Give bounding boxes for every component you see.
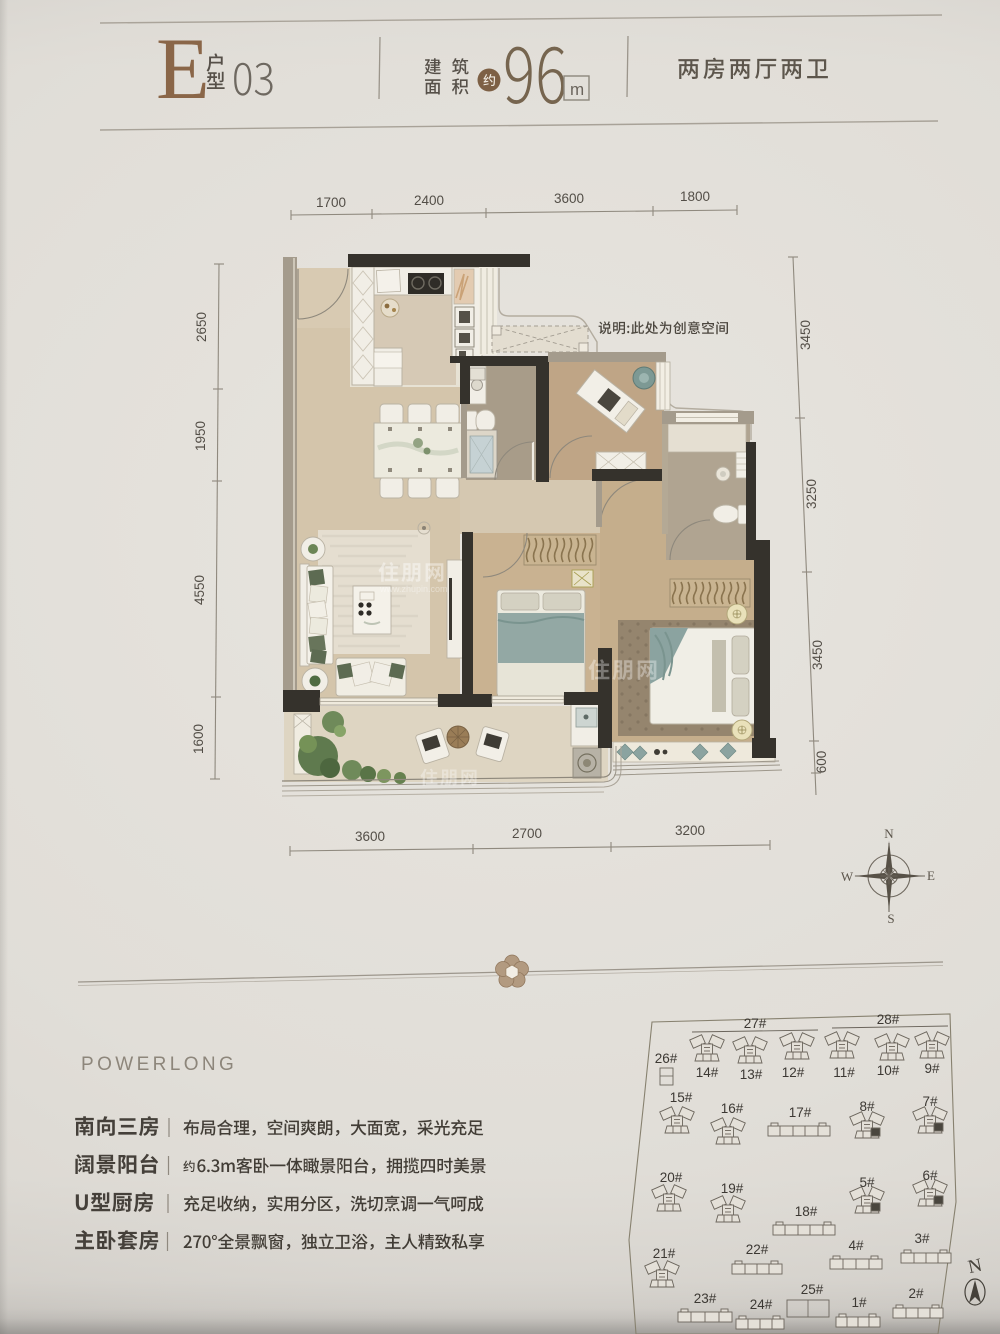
svg-text:1800: 1800: [680, 189, 710, 204]
svg-text:23#: 23#: [694, 1291, 717, 1306]
svg-text:4#: 4#: [848, 1238, 864, 1253]
svg-text:11#: 11#: [833, 1065, 855, 1080]
svg-text:22#: 22#: [746, 1242, 769, 1257]
svg-text:www.zhupin.com: www.zhupin.com: [379, 584, 448, 594]
svg-text:N: N: [884, 826, 894, 841]
svg-text:2#: 2#: [908, 1286, 924, 1301]
svg-text:8#: 8#: [859, 1099, 875, 1114]
svg-text:2400: 2400: [414, 193, 444, 208]
svg-text:19#: 19#: [721, 1181, 744, 1196]
svg-text:3600: 3600: [554, 191, 584, 206]
svg-text:S: S: [887, 911, 894, 926]
svg-text:3250: 3250: [804, 479, 819, 509]
svg-text:2700: 2700: [512, 826, 542, 841]
svg-text:3450: 3450: [798, 320, 813, 350]
svg-text:3450: 3450: [810, 640, 825, 670]
svg-text:N: N: [966, 1255, 984, 1278]
svg-text:20#: 20#: [660, 1170, 683, 1185]
svg-text:24#: 24#: [750, 1297, 773, 1312]
svg-text:1950: 1950: [193, 421, 208, 451]
svg-text:26#: 26#: [655, 1051, 678, 1066]
svg-text:1#: 1#: [851, 1295, 867, 1310]
svg-text:E: E: [927, 868, 935, 883]
svg-text:2650: 2650: [194, 312, 209, 342]
svg-text:3#: 3#: [914, 1231, 930, 1246]
svg-text:3200: 3200: [675, 823, 705, 838]
svg-text:POWERLONG: POWERLONG: [81, 1054, 237, 1075]
svg-text:E: E: [156, 21, 210, 118]
svg-text:4550: 4550: [192, 575, 207, 605]
svg-text:16#: 16#: [721, 1101, 744, 1116]
svg-text:14#: 14#: [696, 1065, 719, 1080]
svg-text:25#: 25#: [801, 1282, 824, 1297]
svg-text:10#: 10#: [877, 1063, 900, 1078]
svg-text:21#: 21#: [653, 1246, 676, 1261]
svg-text:W: W: [841, 869, 854, 884]
svg-text:1600: 1600: [191, 724, 206, 754]
svg-text:3600: 3600: [355, 829, 385, 844]
svg-text:27#: 27#: [744, 1016, 767, 1031]
svg-text:m: m: [570, 80, 584, 99]
svg-text:13#: 13#: [740, 1067, 763, 1082]
svg-text:12#: 12#: [782, 1065, 805, 1080]
svg-text:5#: 5#: [859, 1175, 875, 1190]
svg-text:15#: 15#: [670, 1090, 693, 1105]
svg-text:9#: 9#: [924, 1061, 940, 1076]
svg-text:6#: 6#: [922, 1168, 938, 1183]
svg-text:1700: 1700: [316, 195, 346, 210]
svg-text:7#: 7#: [922, 1094, 938, 1109]
svg-text:17#: 17#: [789, 1105, 812, 1120]
svg-text:18#: 18#: [795, 1204, 818, 1219]
svg-text:28#: 28#: [877, 1012, 900, 1027]
svg-text:600: 600: [814, 751, 829, 774]
